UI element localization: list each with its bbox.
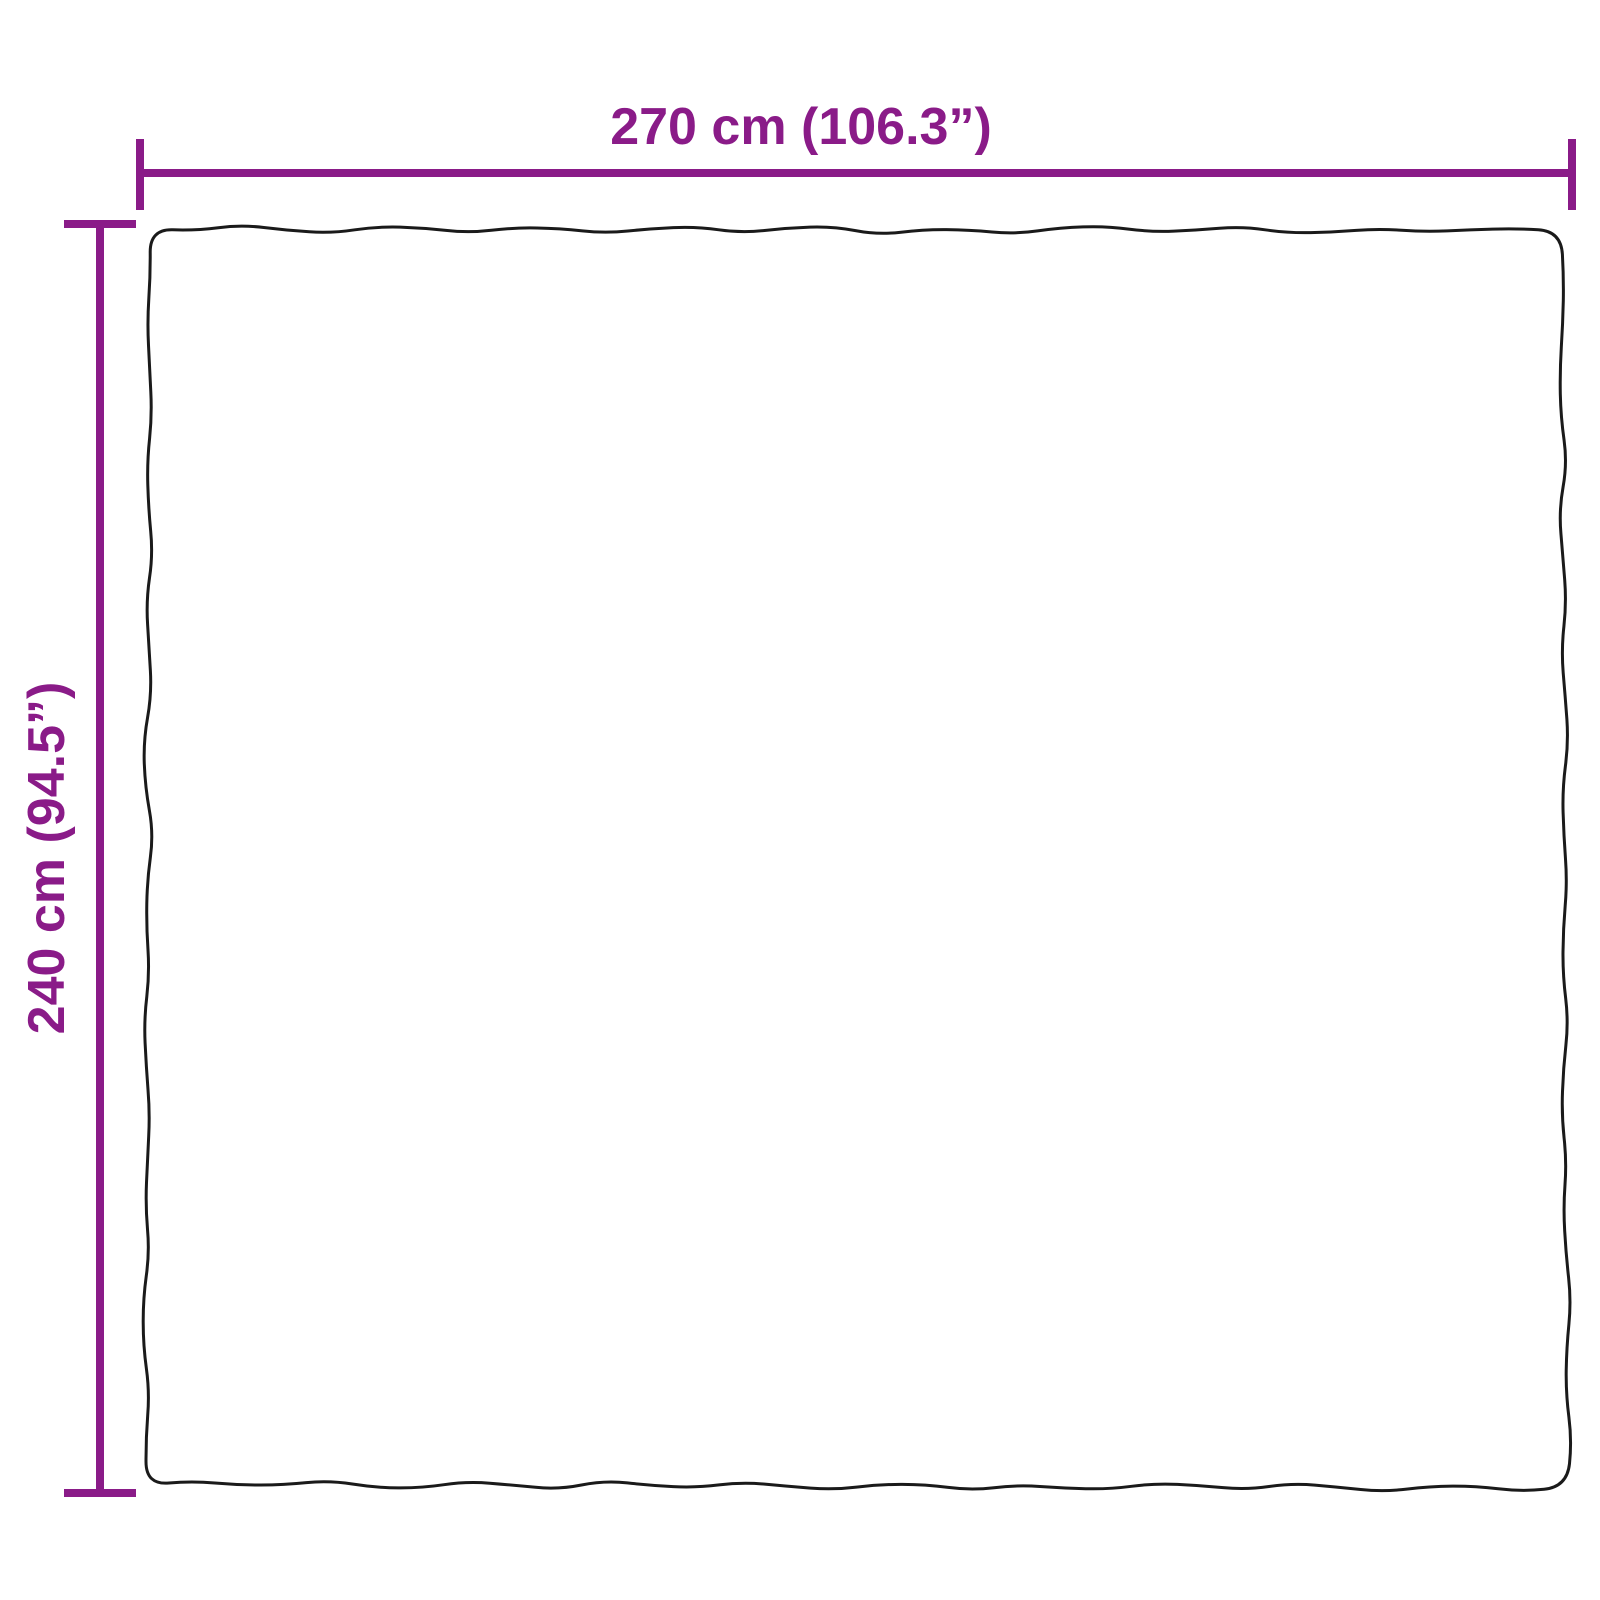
- width-dimension-label: 270 cm (106.3”): [610, 97, 992, 157]
- product-outline: [143, 226, 1570, 1490]
- dimension-diagram: 270 cm (106.3”) 240 cm (94.5”): [0, 0, 1600, 1600]
- diagram-graphics: [0, 0, 1600, 1600]
- height-dimension-label: 240 cm (94.5”): [17, 682, 77, 1035]
